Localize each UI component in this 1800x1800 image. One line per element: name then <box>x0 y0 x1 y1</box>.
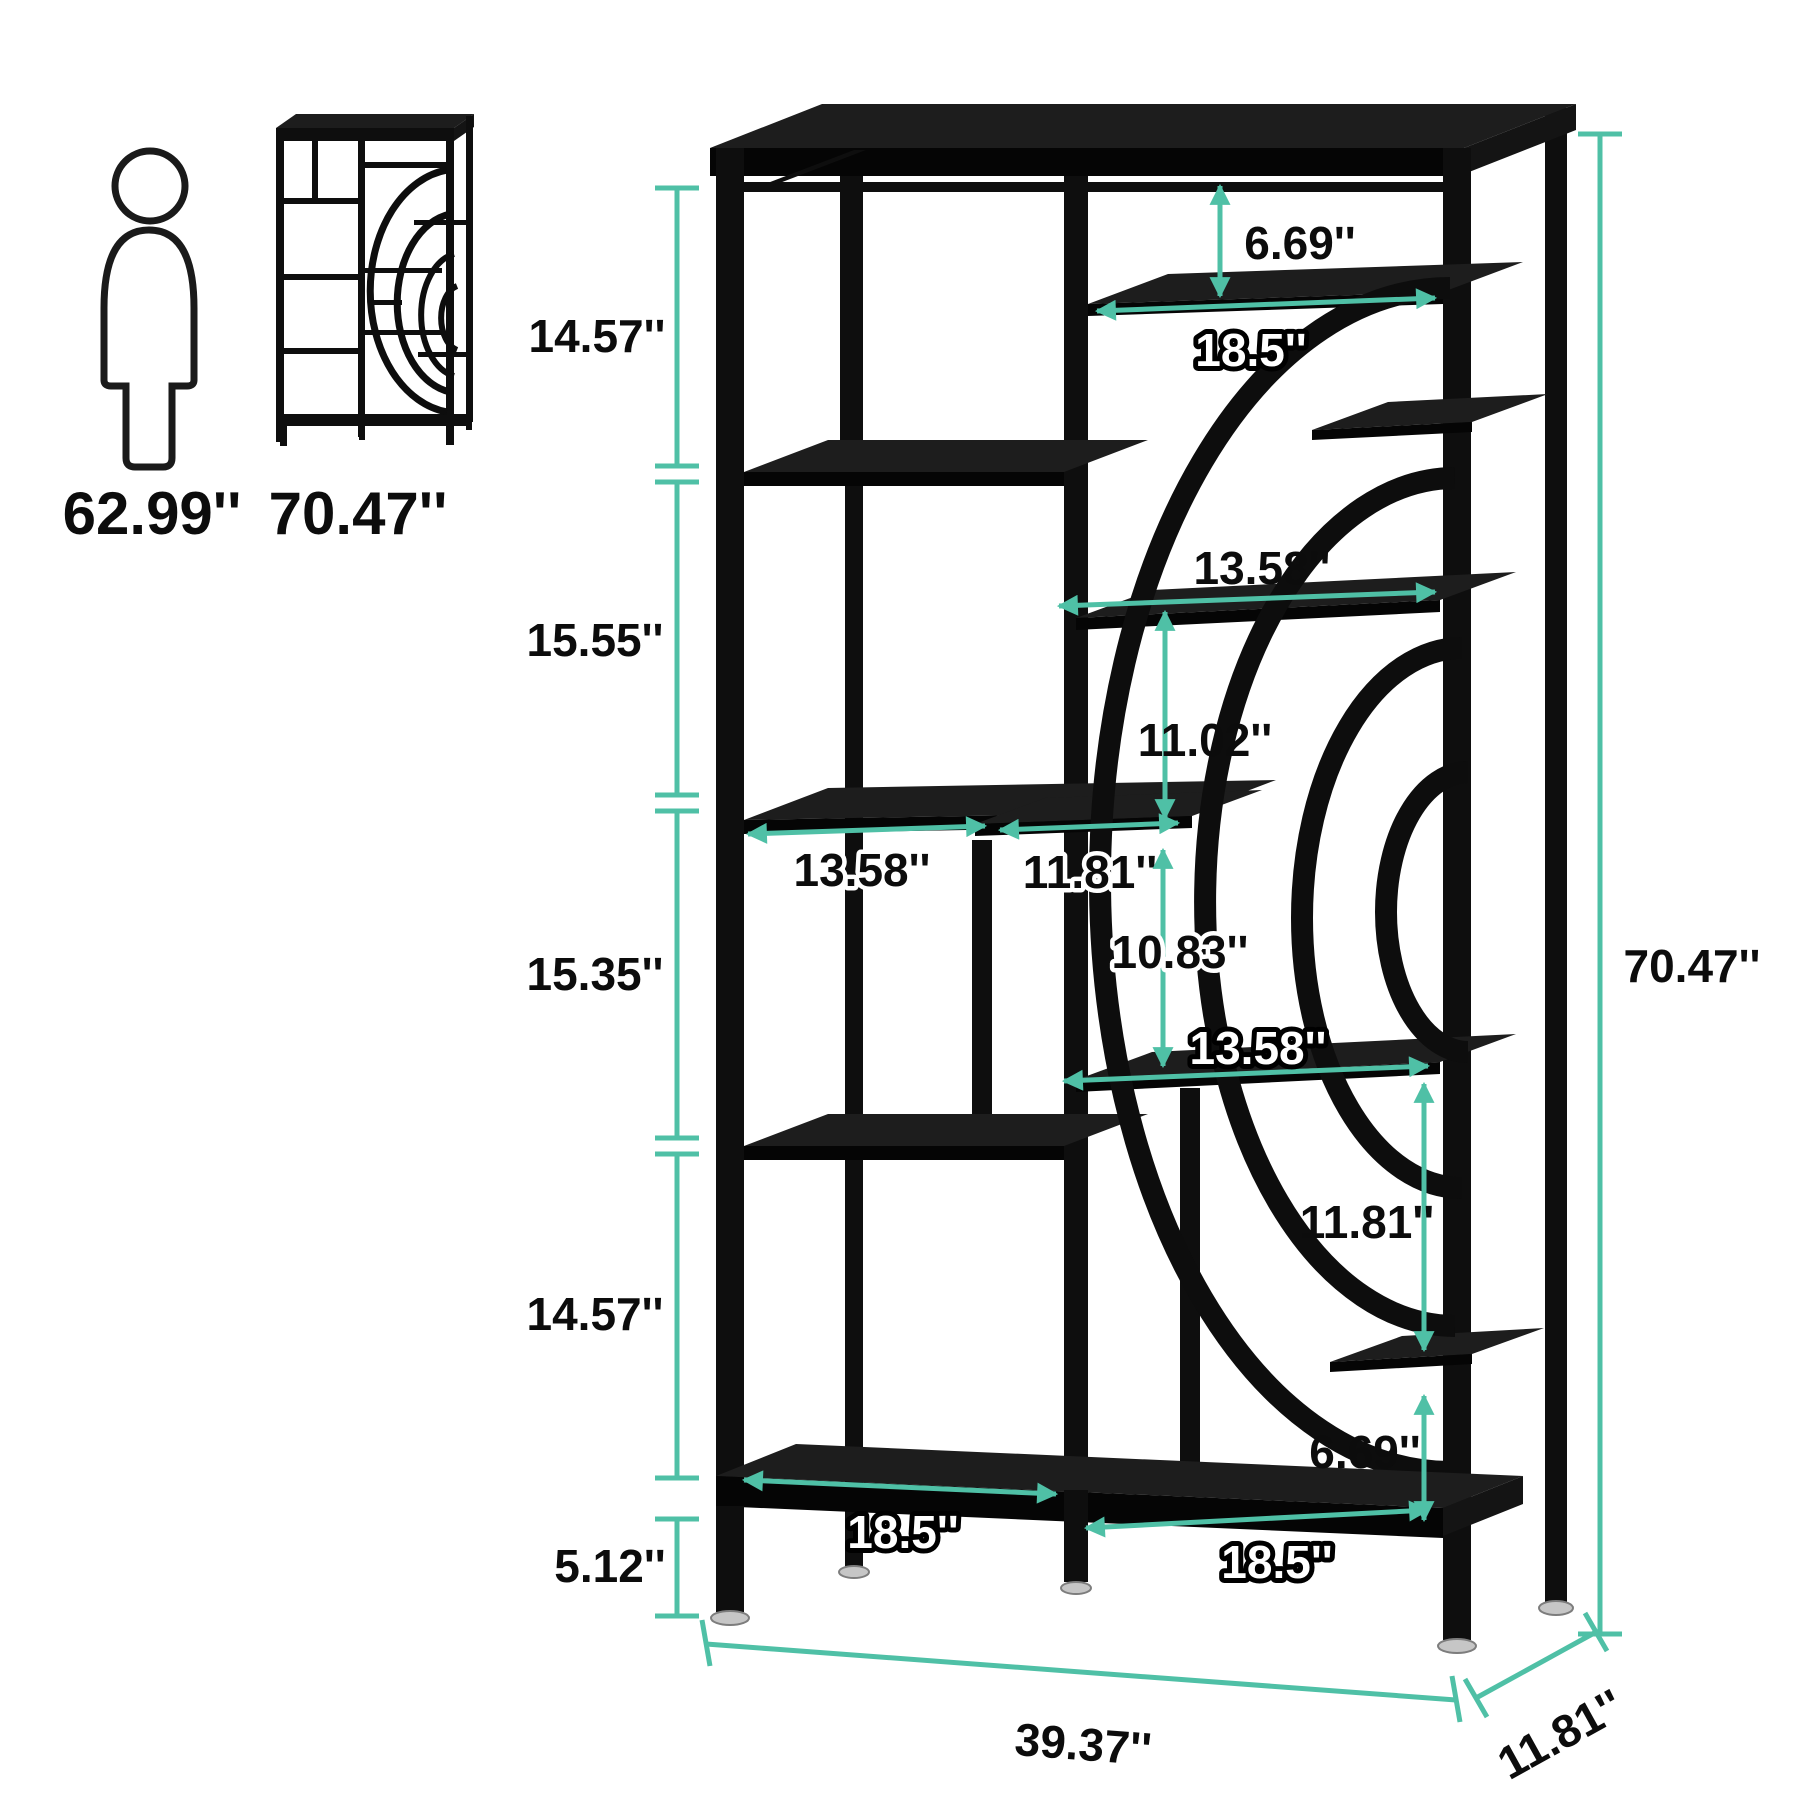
mid-shelf-support <box>972 840 992 1150</box>
center-foot <box>1061 1582 1091 1594</box>
dim-top-clearance: 6.69'' <box>1244 217 1355 269</box>
rear-right-post <box>1545 108 1567 1604</box>
dim-overall-height: 70.47'' <box>1624 940 1761 992</box>
dim-overall-width: 39.37'' <box>1013 1713 1154 1775</box>
left-shelf-lower <box>744 1146 1064 1160</box>
top-board <box>710 104 1576 148</box>
dim-lower-right-clearance: 11.81'' <box>1300 1196 1434 1248</box>
diagram-svg: 62.99'' 70.47'' <box>0 0 1800 1800</box>
dim-middle-small-length: 11.81'' <box>1023 846 1157 898</box>
person-icon <box>104 151 194 467</box>
dim-left-section-3: 15.35'' <box>527 948 664 1000</box>
dim-bottom-left-length: 18.5'' <box>847 1506 958 1558</box>
left-shelf-upper <box>744 472 1064 486</box>
left-dimension-line <box>655 188 699 1616</box>
person-height-label: 62.99'' <box>63 480 242 547</box>
dim-left-base: 5.12'' <box>554 1540 665 1592</box>
left-foot <box>711 1611 749 1625</box>
dim-upper-right-clearance: 11.02'' <box>1138 714 1272 766</box>
dim-base-clearance: 6.69'' <box>1309 1426 1420 1478</box>
dim-left-section-2: 15.55'' <box>527 614 664 666</box>
dim-overall-depth: 11.81'' <box>1489 1679 1632 1790</box>
dim-lower-right-length: 13.58'' <box>1190 1022 1327 1074</box>
dim-middle-left-length: 13.58'' <box>794 844 931 896</box>
dimension-diagram: 62.99'' 70.47'' <box>0 0 1800 1800</box>
height-dimension-line <box>1578 134 1622 1634</box>
left-post <box>716 148 744 1612</box>
top-bay-divider <box>840 176 862 480</box>
dim-left-section-4: 14.57'' <box>527 1288 664 1340</box>
product-thumbnail <box>276 114 474 446</box>
right-post <box>1443 148 1471 1640</box>
person-head <box>115 151 185 221</box>
person-body <box>104 230 194 467</box>
dim-left-section-1: 14.57'' <box>529 310 666 362</box>
right-foot <box>1438 1639 1476 1653</box>
dim-upper-right-length: 13.58'' <box>1194 542 1331 594</box>
thumbnail-height-label: 70.47'' <box>269 480 448 547</box>
dim-bottom-right-length: 18.5'' <box>1221 1536 1332 1588</box>
dim-top-shelf-length: 18.5'' <box>1195 324 1306 376</box>
width-dimension-line <box>702 1620 1460 1722</box>
dim-middle-clearance: 10.83'' <box>1112 926 1249 978</box>
